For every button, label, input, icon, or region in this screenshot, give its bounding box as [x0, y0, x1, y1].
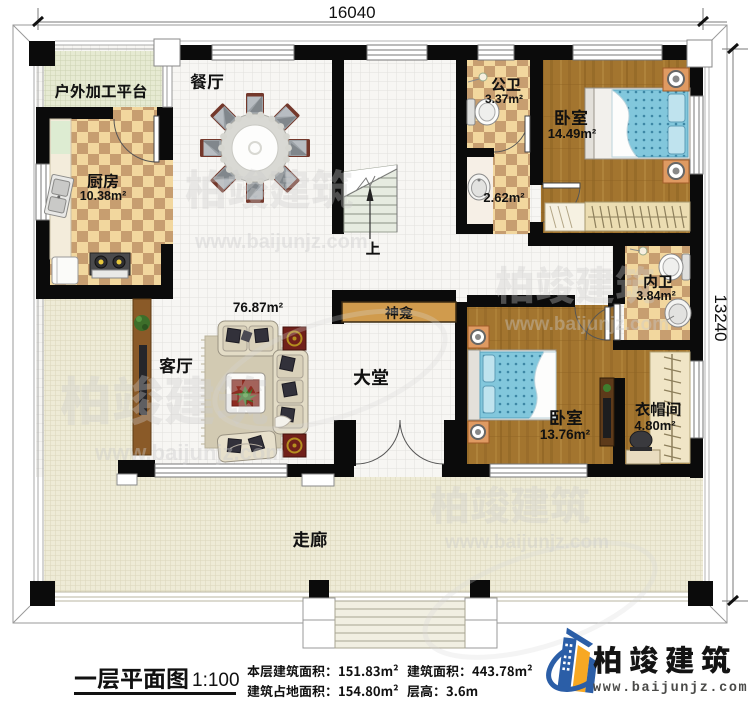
svg-text:3.37m²: 3.37m² [485, 92, 523, 106]
svg-text:4.80m²: 4.80m² [634, 418, 676, 433]
svg-text:13.76m²: 13.76m² [540, 427, 591, 442]
svg-text:www.baijunjz.com: www.baijunjz.com [94, 440, 285, 465]
svg-text:14.49m²: 14.49m² [548, 126, 597, 141]
svg-text:76.87m²: 76.87m² [233, 300, 284, 315]
svg-text:16040: 16040 [328, 3, 375, 22]
svg-text:1:100: 1:100 [192, 670, 240, 691]
svg-text:www.baijunjz.com: www.baijunjz.com [504, 314, 669, 335]
svg-text:3.84m²: 3.84m² [636, 289, 676, 303]
svg-text:www.baijunjz.com: www.baijunjz.com [194, 231, 368, 253]
svg-text:13240: 13240 [711, 294, 730, 341]
svg-text:10.38m²: 10.38m² [80, 189, 127, 203]
svg-text:2.62m²: 2.62m² [483, 190, 525, 205]
svg-text:www.baijunjz.com: www.baijunjz.com [593, 681, 748, 696]
